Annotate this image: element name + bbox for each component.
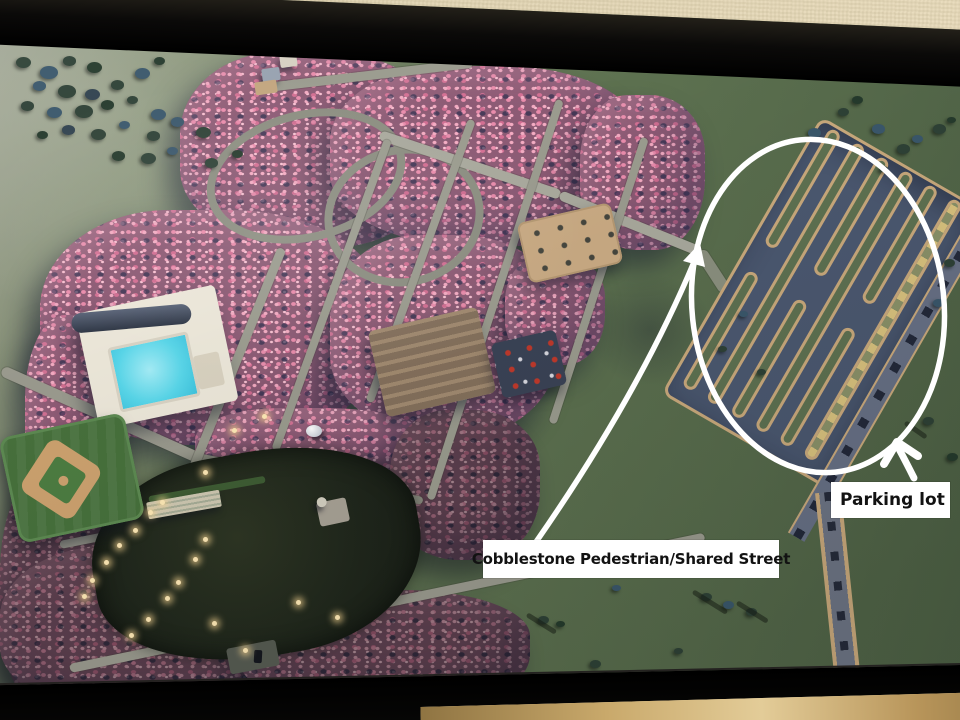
bush bbox=[205, 158, 218, 168]
bush bbox=[852, 96, 863, 104]
bush bbox=[556, 621, 565, 627]
park-lamp bbox=[176, 580, 181, 585]
bush bbox=[87, 62, 102, 73]
park-lamp bbox=[212, 621, 217, 626]
scattered-objects bbox=[0, 0, 960, 720]
bush bbox=[154, 57, 165, 65]
bush bbox=[58, 85, 76, 98]
park-lamp bbox=[117, 543, 122, 548]
bush bbox=[872, 124, 885, 134]
bush bbox=[101, 100, 114, 110]
park-lamp bbox=[193, 557, 198, 562]
park-lamp bbox=[335, 615, 340, 620]
park-lamp bbox=[165, 596, 170, 601]
bush bbox=[947, 117, 956, 123]
shadow-streak bbox=[736, 600, 769, 623]
bush bbox=[21, 101, 34, 111]
park-lamp bbox=[160, 500, 165, 505]
bush bbox=[196, 127, 211, 138]
park-lamp bbox=[203, 470, 208, 475]
photo-of-monitor: Cobblestone Pedestrian/Shared Street Par… bbox=[0, 0, 960, 720]
bush bbox=[75, 105, 93, 118]
bush bbox=[838, 108, 849, 116]
park-lamp bbox=[296, 600, 301, 605]
bush bbox=[947, 453, 958, 461]
bush bbox=[112, 151, 125, 161]
park-lamp bbox=[90, 578, 95, 583]
bush bbox=[912, 135, 923, 143]
bush bbox=[16, 57, 31, 68]
bush bbox=[674, 648, 683, 654]
bush bbox=[85, 89, 100, 100]
bush bbox=[135, 68, 150, 79]
park-lamp bbox=[146, 617, 151, 622]
park-lamp bbox=[203, 537, 208, 542]
bush bbox=[897, 144, 910, 154]
park-lamp bbox=[82, 594, 87, 599]
bush bbox=[147, 131, 160, 141]
bush bbox=[33, 81, 46, 91]
street-annotation-label: Cobblestone Pedestrian/Shared Street bbox=[483, 540, 779, 578]
bush bbox=[63, 56, 76, 66]
bush bbox=[718, 346, 727, 352]
bush bbox=[590, 660, 601, 668]
bush bbox=[612, 585, 621, 591]
bush bbox=[739, 311, 748, 317]
bush bbox=[808, 128, 821, 138]
game-viewport[interactable] bbox=[0, 0, 960, 720]
monitor-stand-strip bbox=[420, 691, 960, 720]
bush bbox=[167, 147, 178, 155]
park-lamp bbox=[133, 528, 138, 533]
park-lamp bbox=[243, 648, 248, 653]
bush bbox=[171, 117, 184, 127]
bush bbox=[40, 66, 58, 79]
bush bbox=[879, 166, 888, 172]
park-lamp bbox=[148, 510, 153, 515]
bush bbox=[933, 124, 946, 134]
bush bbox=[91, 129, 106, 140]
bush bbox=[127, 96, 138, 104]
park-lamp bbox=[129, 633, 134, 638]
bush bbox=[232, 150, 243, 158]
bush bbox=[923, 417, 934, 425]
bush bbox=[141, 153, 156, 164]
bush bbox=[944, 259, 955, 267]
bush bbox=[757, 369, 766, 375]
parking-annotation-label: Parking lot bbox=[831, 482, 950, 518]
bush bbox=[62, 125, 75, 135]
bush bbox=[111, 80, 124, 90]
park-lamp bbox=[232, 428, 237, 433]
bush bbox=[119, 121, 130, 129]
bush bbox=[37, 131, 48, 139]
bush bbox=[151, 109, 166, 120]
bush bbox=[47, 107, 62, 118]
bush bbox=[933, 299, 944, 307]
park-lamp bbox=[104, 560, 109, 565]
park-lamp bbox=[262, 414, 267, 419]
